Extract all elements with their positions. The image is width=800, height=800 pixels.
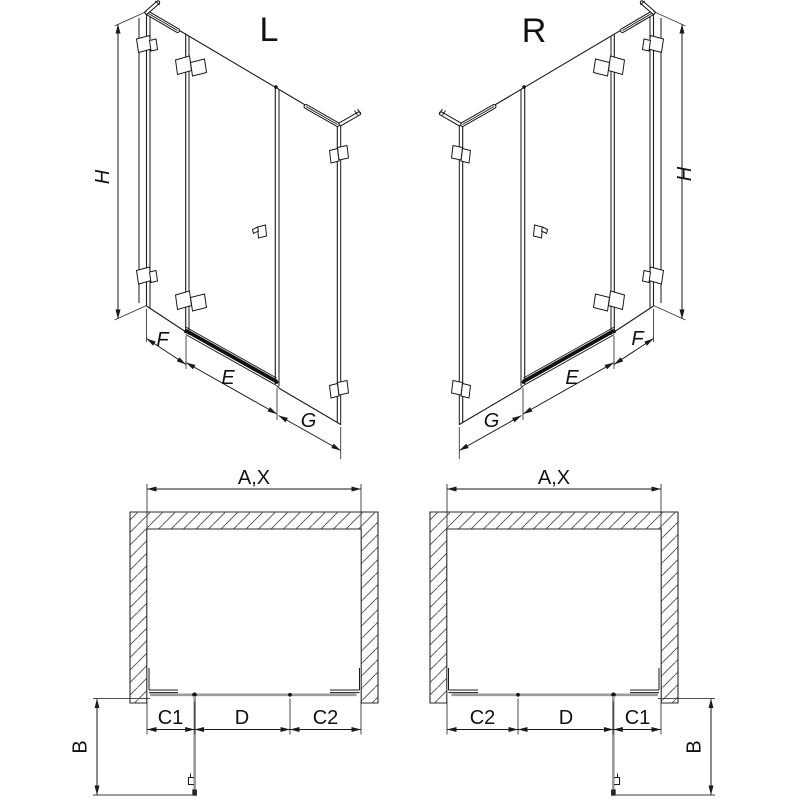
label-c2-right: C2 xyxy=(470,707,496,729)
wall-hinge-lower xyxy=(137,267,158,284)
door-edge xyxy=(275,87,279,387)
label-e-left: E xyxy=(221,367,235,389)
label-g-left: G xyxy=(301,410,317,432)
label-b-right: B xyxy=(684,740,706,753)
junction-dot xyxy=(275,380,279,384)
label-f-left: F xyxy=(156,329,170,351)
junction-dot xyxy=(274,85,278,89)
label-h-left: H xyxy=(92,169,114,184)
label-e-right: E xyxy=(565,367,579,389)
shower-enclosure-drawing: L R H H F E G G E F A,X A,X C1 D C2 C2 D… xyxy=(0,0,800,800)
label-ax-right: A,X xyxy=(538,467,570,489)
label-ax-left: A,X xyxy=(238,467,270,489)
technical-drawing-page: L R H H F E G G E F A,X A,X C1 D C2 C2 D… xyxy=(0,0,800,800)
plan-left-walls xyxy=(130,512,378,703)
plan-panel-joint-dot xyxy=(288,693,292,697)
label-d-right: D xyxy=(559,707,573,729)
corner-clamp-lower xyxy=(330,381,349,399)
plan-door-handle xyxy=(189,778,195,785)
iso-left-geometry xyxy=(115,1,361,459)
label-f-right: F xyxy=(631,328,645,350)
door-hinge-lower xyxy=(176,291,207,311)
corner-post xyxy=(337,124,340,426)
label-c2-left: C2 xyxy=(313,707,339,729)
label-variant-l: L xyxy=(260,11,279,49)
plan-wall-profile-right xyxy=(330,668,360,693)
wall-hinge-upper xyxy=(137,36,158,53)
junction-dot xyxy=(184,330,188,334)
wall-bracket-top-right xyxy=(341,109,361,124)
label-h-right: H xyxy=(674,166,696,181)
wall-bracket-top-left xyxy=(147,1,160,13)
corner-clamp-upper xyxy=(330,146,349,164)
label-b-left: B xyxy=(70,740,92,753)
plan-wall-profile-left xyxy=(149,668,178,693)
support-bar-corner-side xyxy=(306,107,338,125)
door-hinge-upper xyxy=(176,56,207,76)
label-c1-right: C1 xyxy=(625,707,651,729)
support-bar-wall-side xyxy=(149,14,178,31)
door-handle-knob xyxy=(253,225,267,238)
plan-right-walls xyxy=(430,512,678,703)
label-d-left: D xyxy=(235,707,249,729)
label-variant-r: R xyxy=(522,12,547,50)
label-c1-left: C1 xyxy=(158,707,184,729)
label-g-right: G xyxy=(484,410,500,432)
hinge-post xyxy=(186,35,189,336)
wall-post-left xyxy=(139,12,150,308)
iso-right-geometry xyxy=(440,1,686,459)
